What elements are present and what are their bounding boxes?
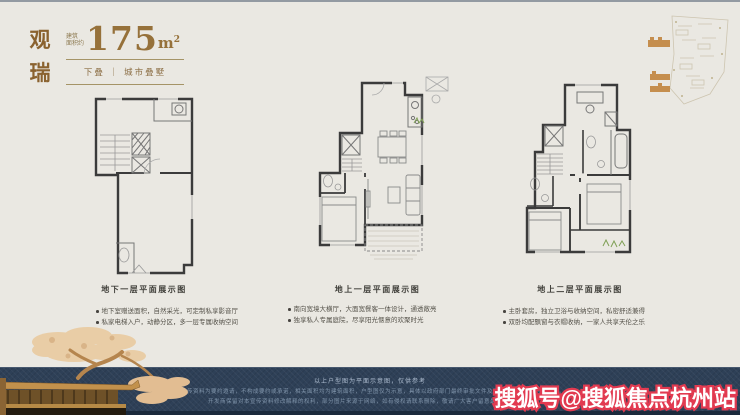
bullet-text: 地下室赠送面积，自然采光，可定制私享影音厅 [102,306,239,317]
area-unit-sup: 2 [174,35,180,45]
bullet-dot-icon [96,321,99,324]
area-label-line: 面积约 [66,41,84,48]
bullet-item: 南向宽境大横厅，大面宽餐客一体设计，通透敞亮 [288,304,473,315]
bullet-dot-icon [503,310,506,313]
pavilion-roof [0,378,140,415]
area-label: 建筑 面积约 [66,34,84,48]
type-tag: 下叠 ｜ 城市叠墅 [66,59,184,85]
bullet-dot-icon [288,319,291,322]
plan-caption-basement: 地下一层平面展示图 [88,284,200,295]
floorplan-basement [88,95,200,280]
bullet-text: 南向宽境大横厅，大面宽餐客一体设计，通透敞亮 [294,304,437,315]
bonsai-tree-illustration [0,326,210,415]
plan-bullets-level2: 主卧套房，独立卫浴与收纳空间，私密舒适兼得 双卧均配飘窗与衣帽收纳，一家人共享天… [503,306,675,328]
project-name-char: 瑞 [27,61,53,85]
area-label-line: 建筑 [66,34,84,41]
plan-caption-level1: 地上一层平面展示图 [300,284,455,295]
bullet-item: 主卧套房，独立卫浴与收纳空间，私密舒适兼得 [503,306,675,317]
area-block: 建筑 面积约 175 m2 下叠 ｜ 城市叠墅 [66,24,186,85]
project-name: 观 瑞 [27,28,53,94]
top-border [0,0,740,2]
plan-bullets-level1: 南向宽境大横厅，大面宽餐客一体设计，通透敞亮 独享私人专属庭院，尽享阳光惬意的欢… [288,304,473,326]
plan-caption-level2: 地上二层平面展示图 [505,284,655,295]
bullet-dot-icon [288,308,291,311]
project-name-char: 观 [27,28,53,52]
bullet-dot-icon [96,310,99,313]
plan-bullets-basement: 地下室赠送面积，自然采光，可定制私享影音厅 私家电梯入户，动静分区，多一层专属收… [96,306,251,328]
bullet-item: 双卧均配飘窗与衣帽收纳，一家人共享天伦之乐 [503,317,675,328]
watermark-text: 搜狐号@搜狐焦点杭州站 [495,386,736,411]
bullet-item: 地下室赠送面积，自然采光，可定制私享影音厅 [96,306,251,317]
bullet-dot-icon [503,321,506,324]
area-unit: m2 [158,34,180,52]
floorplan-level1 [300,75,455,280]
area-unit-letter: m [158,34,174,52]
poster-canvas: 观 瑞 建筑 面积约 175 m2 下叠 ｜ 城市叠墅 [0,0,740,415]
bullet-text: 主卧套房，独立卫浴与收纳空间，私密舒适兼得 [509,306,646,317]
watermark: 搜狐号@搜狐焦点杭州站 [486,383,738,413]
bullet-text: 双卧均配飘窗与衣帽收纳，一家人共享天伦之乐 [509,317,646,328]
area-value: 175 [86,24,158,54]
bullet-text: 独享私人专属庭院，尽享阳光惬意的欢聚时光 [294,315,424,326]
floorplan-level2 [505,80,655,280]
bullet-item: 独享私人专属庭院，尽享阳光惬意的欢聚时光 [288,315,473,326]
